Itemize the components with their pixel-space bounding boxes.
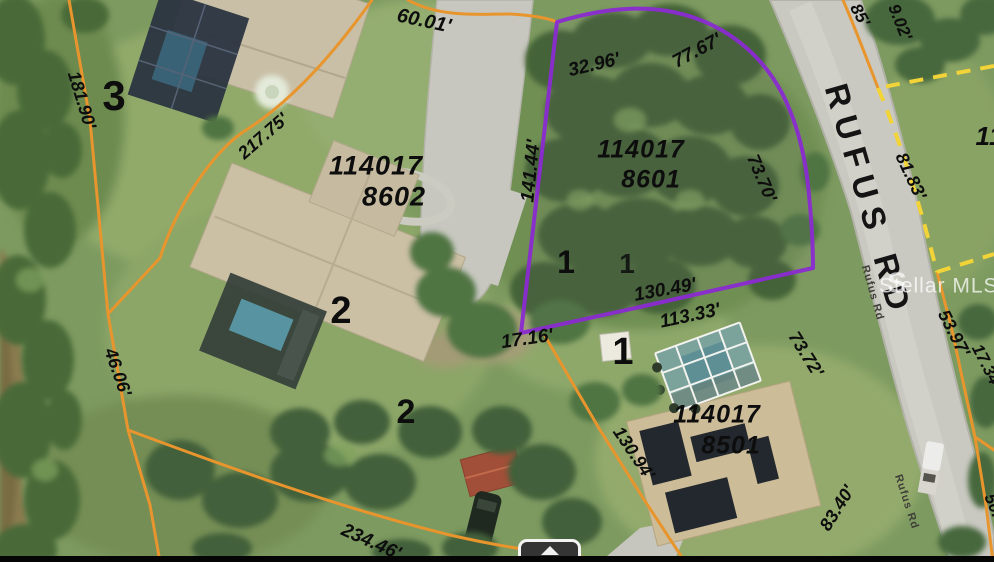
area-number-3: 3: [102, 75, 125, 117]
parcel-apn-right-partial: 11: [976, 123, 994, 149]
parcel-apn-8601-line1: 114017: [597, 138, 685, 163]
parcel-apn-8602-line2: 8602: [362, 184, 426, 211]
area-number-1a: 1: [557, 246, 575, 278]
bottom-bar: [0, 556, 994, 562]
area-number-1b: 1: [619, 250, 635, 278]
watermark-stellar-mls: Stellar MLS®: [879, 276, 994, 297]
arrow-up-icon: [541, 546, 559, 555]
aerial-map[interactable]: 60.01' 32.96' 77.67' 141.44' 73.70' 130.…: [0, 0, 994, 562]
area-number-1c: 1: [612, 333, 633, 371]
area-number-2a: 2: [330, 292, 351, 330]
parcel-apn-8601-line2: 8601: [621, 168, 681, 193]
area-number-2b: 2: [397, 395, 416, 429]
parcel-apn-8501-line1: 114017: [673, 403, 761, 428]
parcel-apn-8602-line1: 114017: [329, 153, 423, 180]
parcel-apn-8501-line2: 8501: [701, 434, 761, 459]
